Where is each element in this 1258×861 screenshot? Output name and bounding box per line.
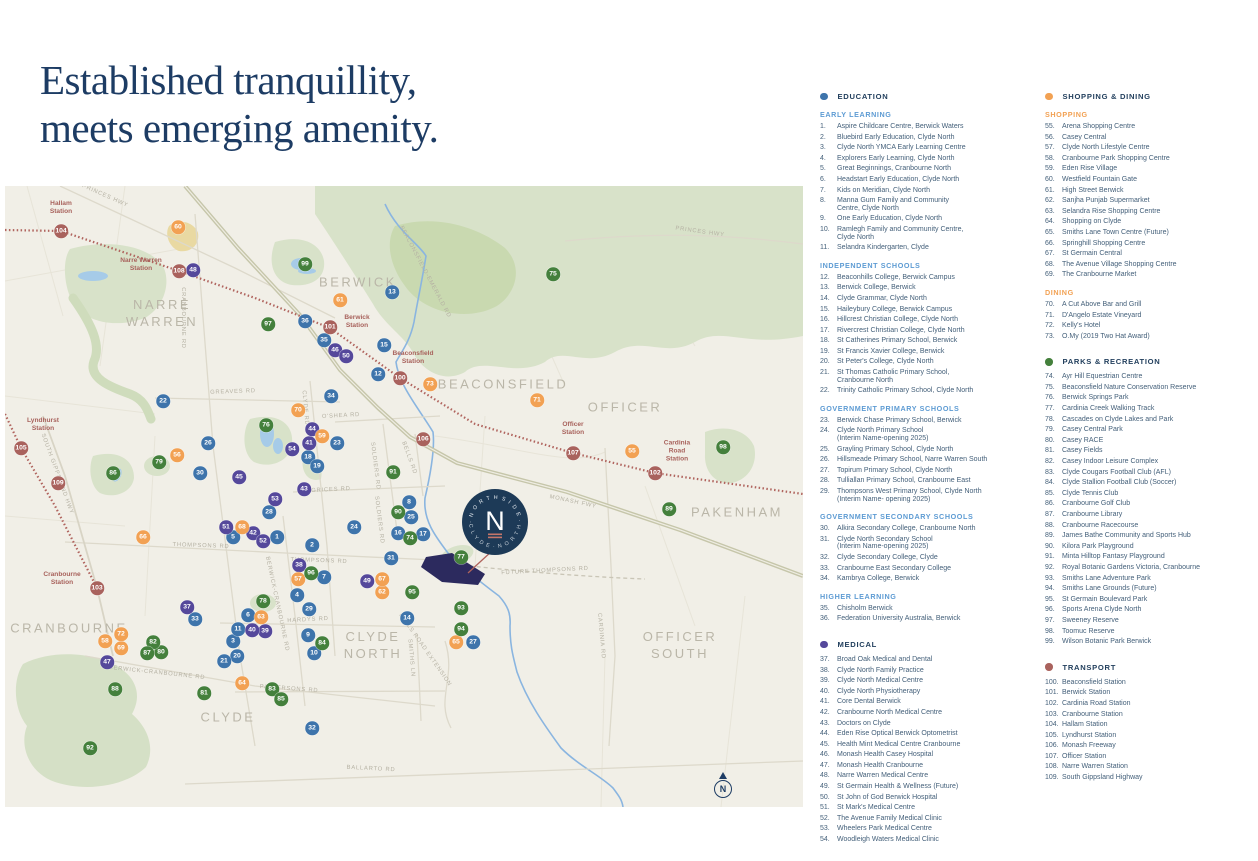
- legend-item-name: Smiths Lane Grounds (Future): [1062, 585, 1257, 593]
- legend-item: 69.The Cranbourne Market: [1045, 271, 1257, 279]
- legend-category-title: TRANSPORT: [1063, 663, 1117, 672]
- legend-item-name: Clyde North Medical Centre: [837, 677, 1036, 685]
- legend-item: 99.Wilson Botanic Park Berwick: [1045, 638, 1257, 646]
- legend-column-2: SHOPPING & DININGSHOPPING55.Arena Shoppi…: [1045, 92, 1257, 799]
- legend-item: 67.St Germain Central: [1045, 250, 1257, 258]
- legend-item: 12.Beaconhills College, Berwick Campus: [820, 274, 1036, 282]
- legend-item: 48.Narre Warren Medical Centre: [820, 772, 1036, 780]
- legend-category-parks-recreation: PARKS & RECREATION74.Ayr Hill Equestrian…: [1045, 357, 1257, 645]
- legend-item-number: 35.: [820, 605, 837, 613]
- legend-item-number: 74.: [1045, 373, 1062, 381]
- legend-item-number: 22.: [820, 387, 837, 395]
- page-title-line1: Established tranquillity,: [40, 56, 438, 104]
- legend-item: 103.Cranbourne Station: [1045, 711, 1257, 719]
- legend-item-name: Sanjha Punjab Supermarket: [1062, 197, 1257, 205]
- legend-item-number: 61.: [1045, 187, 1062, 195]
- legend-item: 101.Berwick Station: [1045, 689, 1257, 697]
- legend-item-name: Clyde Stallion Football Club (Soccer): [1062, 479, 1257, 487]
- map-marker-103: 103: [90, 581, 104, 595]
- legend-item-number: 89.: [1045, 532, 1062, 540]
- badge-underline-1: [488, 534, 502, 536]
- legend-item-number: 53.: [820, 825, 837, 833]
- legend-item-name: Hillcrest Christian College, Clyde North: [837, 316, 1036, 324]
- legend-item: 13.Berwick College, Berwick: [820, 284, 1036, 292]
- page-title-line2: meets emerging amenity.: [40, 104, 438, 152]
- legend-item: 11.Selandra Kindergarten, Clyde: [820, 244, 1036, 252]
- legend-item-name: Selandra Rise Shopping Centre: [1062, 208, 1257, 216]
- map-marker-90: 90: [391, 505, 405, 519]
- legend-item-number: 44.: [820, 730, 837, 738]
- map-marker-47: 47: [100, 655, 114, 669]
- legend-item-number: 6.: [820, 176, 837, 184]
- legend-item-number: 47.: [820, 762, 837, 770]
- legend-item-number: 88.: [1045, 522, 1062, 530]
- legend-item-number: 24.: [820, 427, 837, 442]
- legend-item-name: Narre Warren Station: [1062, 763, 1257, 771]
- legend-item: 46.Monash Health Casey Hospital: [820, 751, 1036, 759]
- legend-item-number: 62.: [1045, 197, 1062, 205]
- legend-item-number: 99.: [1045, 638, 1062, 646]
- legend-item: 107.Officer Station: [1045, 753, 1257, 761]
- legend-item-name: Bluebird Early Education, Clyde North: [837, 134, 1036, 142]
- parks-dot-icon: [1045, 358, 1053, 366]
- legend-item: 71.D'Angelo Estate Vineyard: [1045, 312, 1257, 320]
- map-marker-72: 72: [114, 627, 128, 641]
- legend-item: 90.Kilora Park Playground: [1045, 543, 1257, 551]
- suburb-label-narre-warren: NARRE WARREN: [126, 297, 198, 331]
- legend-item: 108.Narre Warren Station: [1045, 763, 1257, 771]
- legend-item-name: Lyndhurst Station: [1062, 732, 1257, 740]
- station-label: Berwick Station: [344, 314, 369, 330]
- map-marker-54: 54: [285, 442, 299, 456]
- map-marker-27: 27: [466, 635, 480, 649]
- legend-item-number: 48.: [820, 772, 837, 780]
- legend-item-number: 63.: [1045, 208, 1062, 216]
- map-marker-94: 94: [454, 622, 468, 636]
- map-marker-35: 35: [317, 333, 331, 347]
- legend-item: 80.Casey RACE: [1045, 437, 1257, 445]
- map-marker-25: 25: [404, 510, 418, 524]
- map-marker-13: 13: [385, 285, 399, 299]
- legend-item-number: 23.: [820, 417, 837, 425]
- legend-item-number: 58.: [1045, 155, 1062, 163]
- legend-item: 74.Ayr Hill Equestrian Centre: [1045, 373, 1257, 381]
- legend-item-name: Berwick Springs Park: [1062, 394, 1257, 402]
- legend-item-number: 101.: [1045, 689, 1062, 697]
- legend-category-title: EDUCATION: [838, 92, 889, 101]
- legend-column-1: EDUCATIONEARLY LEARNING1.Aspire Childcar…: [820, 92, 1036, 861]
- legend-item-number: 102.: [1045, 700, 1062, 708]
- legend-item-number: 64.: [1045, 218, 1062, 226]
- legend-item: 24.Clyde North Primary School (Interim N…: [820, 427, 1036, 442]
- shopping-dot-icon: [1045, 93, 1053, 101]
- legend-item-name: Narre Warren Medical Centre: [837, 772, 1036, 780]
- legend-item-number: 54.: [820, 836, 837, 844]
- legend-item: 100.Beaconsfield Station: [1045, 679, 1257, 687]
- legend-item-number: 28.: [820, 477, 837, 485]
- legend-item: 77.Cardinia Creek Walking Track: [1045, 405, 1257, 413]
- legend-category-title: PARKS & RECREATION: [1063, 357, 1161, 366]
- legend-item-number: 81.: [1045, 447, 1062, 455]
- map-marker-99: 99: [298, 257, 312, 271]
- legend-category-header: EDUCATION: [820, 92, 1036, 101]
- legend-item-name: Great Beginnings, Cranbourne North: [837, 165, 1036, 173]
- map-marker-66: 66: [136, 530, 150, 544]
- map-marker-28: 28: [262, 505, 276, 519]
- legend-group-label: GOVERNMENT PRIMARY SCHOOLS: [820, 404, 1036, 413]
- map-marker-78: 78: [256, 594, 270, 608]
- legend-item: 33.Cranbourne East Secondary College: [820, 565, 1036, 573]
- map-marker-104: 104: [54, 224, 68, 238]
- legend-item-number: 36.: [820, 615, 837, 623]
- map-marker-59: 59: [315, 429, 329, 443]
- map-marker-61: 61: [333, 293, 347, 307]
- legend-item-number: 104.: [1045, 721, 1062, 729]
- map-marker-55: 55: [625, 444, 639, 458]
- legend-item-name: Arena Shopping Centre: [1062, 123, 1257, 131]
- legend-item: 72.Kelly's Hotel: [1045, 322, 1257, 330]
- legend-item-number: 8.: [820, 197, 837, 212]
- suburb-label-clyde: CLYDE: [201, 710, 256, 727]
- legend-item: 42.Cranbourne North Medical Centre: [820, 709, 1036, 717]
- legend-item: 49.St Germain Health & Wellness (Future): [820, 783, 1036, 791]
- legend-category-transport: TRANSPORT100.Beaconsfield Station101.Ber…: [1045, 663, 1257, 782]
- legend-item: 29.Thompsons West Primary School, Clyde …: [820, 488, 1036, 503]
- legend-item-number: 68.: [1045, 261, 1062, 269]
- legend-group-label: EARLY LEARNING: [820, 110, 1036, 119]
- legend-item: 57.Clyde North Lifestyle Centre: [1045, 144, 1257, 152]
- legend-item-name: James Bathe Community and Sports Hub: [1062, 532, 1257, 540]
- legend-item-number: 60.: [1045, 176, 1062, 184]
- legend-item: 26.Hillsmeade Primary School, Narre Warr…: [820, 456, 1036, 464]
- legend-item-number: 57.: [1045, 144, 1062, 152]
- legend-item-name: Clyde Grammar, Clyde North: [837, 295, 1036, 303]
- map-marker-63: 63: [254, 610, 268, 624]
- legend-item: 22.Trinity Catholic Primary School, Clyd…: [820, 387, 1036, 395]
- legend-item-number: 69.: [1045, 271, 1062, 279]
- legend-item-number: 91.: [1045, 553, 1062, 561]
- legend-item-name: Haileybury College, Berwick Campus: [837, 306, 1036, 314]
- legend-item-name: Casey Central Park: [1062, 426, 1257, 434]
- legend-group-label: DINING: [1045, 288, 1257, 297]
- map-marker-84: 84: [315, 636, 329, 650]
- legend-item: 36.Federation University Australia, Berw…: [820, 615, 1036, 623]
- suburb-label-pakenham: PAKENHAM: [691, 505, 783, 522]
- legend-item-number: 90.: [1045, 543, 1062, 551]
- legend-item-name: Officer Station: [1062, 753, 1257, 761]
- legend-item-name: St Germain Central: [1062, 250, 1257, 258]
- legend-group-label: INDEPENDENT SCHOOLS: [820, 261, 1036, 270]
- legend-item-name: Ramlegh Family and Community Centre, Cly…: [837, 226, 1036, 241]
- legend-item: 4.Explorers Early Learning, Clyde North: [820, 155, 1036, 163]
- legend-item: 39.Clyde North Medical Centre: [820, 677, 1036, 685]
- legend-item-number: 94.: [1045, 585, 1062, 593]
- legend-item: 47.Monash Health Cranbourne: [820, 762, 1036, 770]
- legend-item: 75.Beaconsfield Nature Conservation Rese…: [1045, 384, 1257, 392]
- station-label: Narre Warren Station: [120, 257, 162, 273]
- map-marker-4: 4: [290, 588, 304, 602]
- legend-item: 85.Clyde Tennis Club: [1045, 490, 1257, 498]
- legend-item-name: Royal Botanic Gardens Victoria, Cranbour…: [1062, 564, 1257, 572]
- legend-item: 70.A Cut Above Bar and Grill: [1045, 301, 1257, 309]
- map-marker-41: 41: [302, 436, 316, 450]
- compass-arrow-icon: [719, 772, 727, 779]
- legend-item-name: Hallam Station: [1062, 721, 1257, 729]
- legend-item: 65.Smiths Lane Town Centre (Future): [1045, 229, 1257, 237]
- legend-item-name: St Peter's College, Clyde North: [837, 358, 1036, 366]
- legend-category-header: TRANSPORT: [1045, 663, 1257, 672]
- map-marker-101: 101: [323, 320, 337, 334]
- legend-item: 76.Berwick Springs Park: [1045, 394, 1257, 402]
- station-label: Hallam Station: [50, 200, 72, 216]
- map-marker-33: 33: [188, 612, 202, 626]
- map-marker-26: 26: [201, 436, 215, 450]
- legend-item-name: Berwick College, Berwick: [837, 284, 1036, 292]
- map-marker-100: 100: [393, 371, 407, 385]
- legend-item-name: Cranbourne Park Shopping Centre: [1062, 155, 1257, 163]
- legend-item-number: 5.: [820, 165, 837, 173]
- legend-item-number: 29.: [820, 488, 837, 503]
- legend-item-number: 51.: [820, 804, 837, 812]
- map-marker-95: 95: [405, 585, 419, 599]
- legend-item-name: Eden Rise Village: [1062, 165, 1257, 173]
- map-marker-86: 86: [106, 466, 120, 480]
- legend-item-name: High Street Berwick: [1062, 187, 1257, 195]
- legend-item-name: Cranbourne Station: [1062, 711, 1257, 719]
- legend-item: 87.Cranbourne Library: [1045, 511, 1257, 519]
- legend-item: 17.Rivercrest Christian College, Clyde N…: [820, 327, 1036, 335]
- legend-item-number: 82.: [1045, 458, 1062, 466]
- suburb-label-cranbourne: CRANBOURNE: [10, 621, 127, 638]
- legend-item-name: Thompsons West Primary School, Clyde Nor…: [837, 488, 1036, 503]
- legend-item-number: 96.: [1045, 606, 1062, 614]
- map-marker-87: 87: [140, 646, 154, 660]
- map-marker-67: 67: [375, 572, 389, 586]
- legend-item: 30.Alkira Secondary College, Cranbourne …: [820, 525, 1036, 533]
- map-marker-31: 31: [384, 551, 398, 565]
- legend-item-name: Manna Gum Family and Community Centre, C…: [837, 197, 1036, 212]
- legend-item-name: O.My (2019 Two Hat Award): [1062, 333, 1257, 341]
- legend-item-name: Hillsmeade Primary School, Narre Warren …: [837, 456, 1036, 464]
- legend-item: 97.Sweeney Reserve: [1045, 617, 1257, 625]
- legend-item: 50.St John of God Berwick Hospital: [820, 794, 1036, 802]
- map-marker-49: 49: [360, 574, 374, 588]
- legend-item: 104.Hallam Station: [1045, 721, 1257, 729]
- legend-item: 34.Kambrya College, Berwick: [820, 575, 1036, 583]
- legend-item-number: 71.: [1045, 312, 1062, 320]
- legend-item: 60.Westfield Fountain Gate: [1045, 176, 1257, 184]
- legend-category-education: EDUCATIONEARLY LEARNING1.Aspire Childcar…: [820, 92, 1036, 623]
- map-marker-69: 69: [114, 641, 128, 655]
- legend-item-number: 1.: [820, 123, 837, 131]
- legend-item-name: Alkira Secondary College, Cranbourne Nor…: [837, 525, 1036, 533]
- legend-item-name: Smiths Lane Town Centre (Future): [1062, 229, 1257, 237]
- legend-item-number: 105.: [1045, 732, 1062, 740]
- legend-item-number: 19.: [820, 348, 837, 356]
- legend-item-number: 76.: [1045, 394, 1062, 402]
- legend-item-name: Casey Fields: [1062, 447, 1257, 455]
- legend-item-number: 87.: [1045, 511, 1062, 519]
- legend-item-name: St Germain Health & Wellness (Future): [837, 783, 1036, 791]
- legend-item-name: Clyde North Physiotherapy: [837, 688, 1036, 696]
- page-title: Established tranquillity, meets emerging…: [40, 56, 438, 152]
- legend-item-number: 70.: [1045, 301, 1062, 309]
- legend-item-number: 18.: [820, 337, 837, 345]
- legend-category-header: MEDICAL: [820, 640, 1036, 649]
- legend-item-name: Cranbourne North Medical Centre: [837, 709, 1036, 717]
- legend-item: 91.Minta Hilltop Fantasy Playground: [1045, 553, 1257, 561]
- map-marker-57: 57: [291, 572, 305, 586]
- map-marker-24: 24: [347, 520, 361, 534]
- legend-item-name: Ayr Hill Equestrian Centre: [1062, 373, 1257, 381]
- legend-item: 109.South Gippsland Highway: [1045, 774, 1257, 782]
- legend-category-header: PARKS & RECREATION: [1045, 357, 1257, 366]
- legend-item-number: 31.: [820, 536, 837, 551]
- legend-item: 73.O.My (2019 Two Hat Award): [1045, 333, 1257, 341]
- legend-item: 37.Broad Oak Medical and Dental: [820, 656, 1036, 664]
- legend-item-number: 75.: [1045, 384, 1062, 392]
- legend-item: 16.Hillcrest Christian College, Clyde No…: [820, 316, 1036, 324]
- legend-item-number: 59.: [1045, 165, 1062, 173]
- legend-item-number: 66.: [1045, 240, 1062, 248]
- legend-item-name: St John of God Berwick Hospital: [837, 794, 1036, 802]
- compass-rose: N: [713, 772, 733, 798]
- legend-item: 96.Sports Arena Clyde North: [1045, 606, 1257, 614]
- legend-item-name: Aspire Childcare Centre, Berwick Waters: [837, 123, 1036, 131]
- suburb-label-clyde-north: CLYDE NORTH: [344, 629, 402, 663]
- legend-item: 83.Clyde Cougars Football Club (AFL): [1045, 469, 1257, 477]
- legend-item: 7.Kids on Meridian, Clyde North: [820, 187, 1036, 195]
- legend-item-name: Cascades on Clyde Lakes and Park: [1062, 416, 1257, 424]
- legend-item-name: Health Mint Medical Centre Cranbourne: [837, 741, 1036, 749]
- legend-item-number: 13.: [820, 284, 837, 292]
- legend-item-name: Westfield Fountain Gate: [1062, 176, 1257, 184]
- legend-item-name: Cranbourne Racecourse: [1062, 522, 1257, 530]
- legend-item: 84.Clyde Stallion Football Club (Soccer): [1045, 479, 1257, 487]
- legend-item-name: Explorers Early Learning, Clyde North: [837, 155, 1036, 163]
- legend-item-number: 55.: [1045, 123, 1062, 131]
- legend-item-number: 25.: [820, 446, 837, 454]
- legend-item-name: Clyde Tennis Club: [1062, 490, 1257, 498]
- legend-item: 23.Berwick Chase Primary School, Berwick: [820, 417, 1036, 425]
- legend-item-name: Smiths Lane Adventure Park: [1062, 575, 1257, 583]
- legend-item-name: Cardinia Creek Walking Track: [1062, 405, 1257, 413]
- legend-item: 10.Ramlegh Family and Community Centre, …: [820, 226, 1036, 241]
- legend-item-number: 20.: [820, 358, 837, 366]
- legend-group-label: HIGHER LEARNING: [820, 592, 1036, 601]
- legend-item-number: 41.: [820, 698, 837, 706]
- legend-item-number: 77.: [1045, 405, 1062, 413]
- legend-item-name: The Cranbourne Market: [1062, 271, 1257, 279]
- legend-item: 15.Haileybury College, Berwick Campus: [820, 306, 1036, 314]
- legend-item-name: Cranbourne East Secondary College: [837, 565, 1036, 573]
- legend-item-number: 65.: [1045, 229, 1062, 237]
- legend-item: 102.Cardinia Road Station: [1045, 700, 1257, 708]
- legend-item: 32.Clyde Secondary College, Clyde: [820, 554, 1036, 562]
- legend-item-number: 100.: [1045, 679, 1062, 687]
- legend-item-name: Broad Oak Medical and Dental: [837, 656, 1036, 664]
- legend-item-number: 27.: [820, 467, 837, 475]
- legend-item-name: St Germain Boulevard Park: [1062, 596, 1257, 604]
- map-marker-108: 108: [172, 264, 186, 278]
- map-marker-36: 36: [298, 314, 312, 328]
- legend-item-name: Beaconsfield Station: [1062, 679, 1257, 687]
- map-marker-20: 20: [230, 649, 244, 663]
- legend-item: 54.Woodleigh Waters Medical Clinic: [820, 836, 1036, 844]
- legend-item: 61.High Street Berwick: [1045, 187, 1257, 195]
- legend-item-number: 78.: [1045, 416, 1062, 424]
- legend-item-name: Sweeney Reserve: [1062, 617, 1257, 625]
- legend-item-name: Headstart Early Education, Clyde North: [837, 176, 1036, 184]
- legend-item-number: 21.: [820, 369, 837, 384]
- legend-item: 66.Springhill Shopping Centre: [1045, 240, 1257, 248]
- legend-item: 27.Topirum Primary School, Clyde North: [820, 467, 1036, 475]
- legend-item: 63.Selandra Rise Shopping Centre: [1045, 208, 1257, 216]
- legend-item-name: Federation University Australia, Berwick: [837, 615, 1036, 623]
- legend-item: 18.St Catherines Primary School, Berwick: [820, 337, 1036, 345]
- map-marker-7: 7: [317, 570, 331, 584]
- legend-item-name: Kambrya College, Berwick: [837, 575, 1036, 583]
- legend-item-number: 109.: [1045, 774, 1062, 782]
- legend-item: 81.Casey Fields: [1045, 447, 1257, 455]
- map-marker-71: 71: [530, 393, 544, 407]
- legend-item-number: 38.: [820, 667, 837, 675]
- legend-item: 40.Clyde North Physiotherapy: [820, 688, 1036, 696]
- map-marker-98: 98: [716, 440, 730, 454]
- legend-item-number: 86.: [1045, 500, 1062, 508]
- legend-item: 3.Clyde North YMCA Early Learning Centre: [820, 144, 1036, 152]
- map-marker-88: 88: [108, 682, 122, 696]
- map-marker-60: 60: [171, 220, 185, 234]
- legend-category-title: MEDICAL: [838, 640, 878, 649]
- legend-item: 78.Cascades on Clyde Lakes and Park: [1045, 416, 1257, 424]
- northside-clyde-north-badge: · N O R T H S I D E · C L Y D E · N O R …: [461, 488, 529, 556]
- map-marker-96: 96: [304, 566, 318, 580]
- legend-item: 93.Smiths Lane Adventure Park: [1045, 575, 1257, 583]
- map-marker-64: 64: [235, 676, 249, 690]
- legend-item-number: 11.: [820, 244, 837, 252]
- legend-item-number: 108.: [1045, 763, 1062, 771]
- legend-item-number: 50.: [820, 794, 837, 802]
- legend-item: 51.St Mark's Medical Centre: [820, 804, 1036, 812]
- legend-item-name: Toomuc Reserve: [1062, 628, 1257, 636]
- legend-item-name: Clyde North Family Practice: [837, 667, 1036, 675]
- legend-item-number: 79.: [1045, 426, 1062, 434]
- legend-item-number: 80.: [1045, 437, 1062, 445]
- legend-item-number: 26.: [820, 456, 837, 464]
- legend-item: 64.Shopping on Clyde: [1045, 218, 1257, 226]
- legend-item-number: 10.: [820, 226, 837, 241]
- legend-item-name: Beaconhills College, Berwick Campus: [837, 274, 1036, 282]
- legend-item-number: 56.: [1045, 134, 1062, 142]
- legend-item-name: Clyde North Primary School (Interim Name…: [837, 427, 1036, 442]
- legend-item-name: Berwick Chase Primary School, Berwick: [837, 417, 1036, 425]
- suburb-label-officer: OFFICER: [588, 400, 663, 417]
- legend-item-number: 95.: [1045, 596, 1062, 604]
- map-marker-79: 79: [152, 455, 166, 469]
- legend-item-number: 7.: [820, 187, 837, 195]
- map-marker-52: 52: [256, 534, 270, 548]
- legend-item-name: Casey RACE: [1062, 437, 1257, 445]
- station-label: Cardinia Road Station: [664, 440, 690, 465]
- legend-item-number: 106.: [1045, 742, 1062, 750]
- legend-item-number: 39.: [820, 677, 837, 685]
- legend-item-number: 40.: [820, 688, 837, 696]
- legend-item-name: St Mark's Medical Centre: [837, 804, 1036, 812]
- legend-item-name: Cranbourne Library: [1062, 511, 1257, 519]
- legend-item-number: 17.: [820, 327, 837, 335]
- legend-item-number: 15.: [820, 306, 837, 314]
